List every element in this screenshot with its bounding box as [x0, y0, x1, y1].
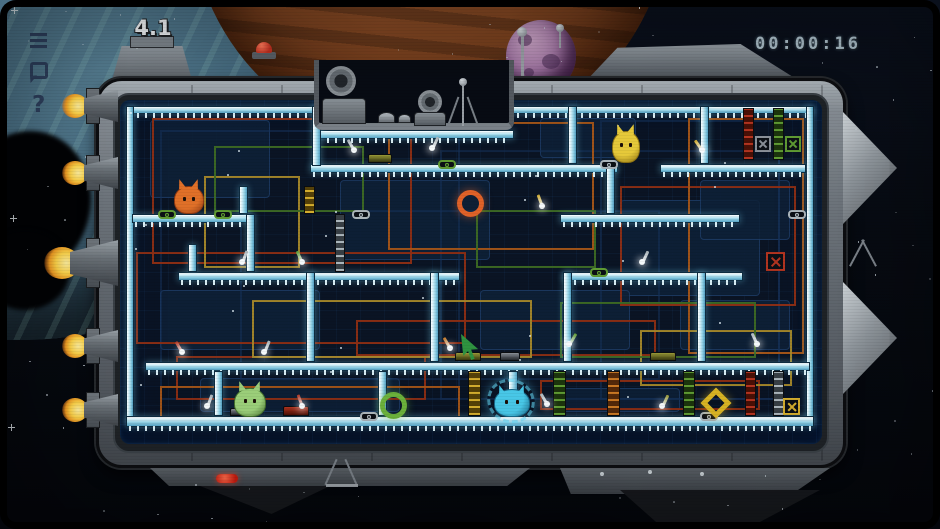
olive-machine — [455, 352, 481, 361]
lever-pivot[interactable] — [239, 259, 245, 265]
antenna-tripod-pole — [462, 82, 464, 126]
ice-pipe — [239, 186, 248, 214]
snow-particle — [238, 150, 240, 152]
star — [673, 501, 675, 503]
lever-pivot[interactable] — [179, 349, 185, 355]
loudspeaker-icon — [326, 66, 356, 96]
star — [894, 420, 896, 422]
lever-pivot[interactable] — [299, 259, 305, 265]
star — [527, 523, 529, 525]
yellow-switch-box[interactable] — [783, 398, 800, 415]
yellow-creature[interactable] — [612, 131, 640, 163]
bottom-dark-wedge-2 — [620, 490, 820, 522]
green-ring — [380, 392, 407, 419]
ice-pipe — [560, 214, 740, 223]
dark-machine — [500, 352, 520, 361]
lever-pivot[interactable] — [351, 147, 357, 153]
ice-pipe — [806, 106, 814, 424]
star-twinkle — [11, 7, 18, 14]
ice-pipe — [660, 164, 806, 173]
lever-pivot[interactable] — [754, 341, 760, 347]
star — [46, 394, 48, 396]
orange-creature[interactable] — [174, 186, 204, 214]
star-twinkle — [636, 2, 643, 9]
right-fin-bottom — [843, 282, 897, 394]
snow-particle — [432, 273, 434, 275]
ice-pipe — [568, 106, 577, 164]
star — [652, 35, 654, 37]
antenna-ball-2 — [556, 24, 564, 32]
snow-particle — [130, 112, 132, 114]
red-pipe-column — [745, 371, 756, 416]
antenna-mast-2 — [559, 30, 561, 48]
pipe-connector — [360, 412, 378, 421]
yellow-pipe-column — [304, 186, 315, 214]
game-screen: 4.1 00:00:16 ? — [0, 0, 940, 529]
pipe-connector — [352, 210, 370, 219]
star — [544, 27, 546, 29]
creature-body — [174, 186, 204, 214]
green-pipe-column — [553, 371, 566, 416]
star — [358, 496, 360, 498]
star — [857, 449, 859, 451]
ice-pipe — [126, 106, 134, 424]
red-hull-light — [216, 474, 238, 483]
creature-eye — [183, 197, 186, 201]
lever-pivot[interactable] — [544, 401, 550, 407]
creature-eye — [629, 143, 632, 147]
star — [65, 11, 67, 13]
yellow-pipe-column — [468, 371, 481, 416]
star — [911, 453, 913, 455]
hull-light-2 — [648, 470, 652, 474]
star — [858, 241, 860, 243]
fin-antenna-leg-2 — [861, 239, 877, 266]
star — [819, 479, 821, 481]
snow-particle — [724, 162, 726, 164]
trestle-base — [326, 484, 358, 487]
red-pipe-column — [743, 108, 754, 160]
creature-eye — [192, 197, 195, 201]
ice-pipe — [310, 164, 618, 173]
star — [822, 62, 824, 64]
green-creature[interactable] — [234, 388, 266, 417]
ice-pipe — [132, 214, 252, 223]
star — [398, 49, 400, 51]
star — [782, 508, 784, 510]
snow-particle — [422, 297, 424, 299]
right-fin-top — [843, 112, 897, 224]
antenna-ball — [517, 27, 527, 37]
star — [211, 518, 213, 520]
loudspeaker-2-base — [414, 112, 446, 126]
pipe-connector — [438, 160, 456, 169]
dome-greeble — [378, 112, 395, 123]
star — [912, 245, 914, 247]
olive-machine — [650, 352, 676, 361]
green-pipe-column — [683, 371, 695, 416]
star — [63, 427, 65, 429]
dark-switch-box[interactable] — [755, 136, 771, 152]
lever-pivot[interactable] — [204, 403, 210, 409]
ice-pipe — [697, 272, 706, 362]
pipe-connector — [590, 268, 608, 277]
ice-pipe — [506, 106, 814, 114]
restart-icon[interactable] — [30, 62, 48, 79]
menu-icon[interactable] — [30, 33, 47, 48]
antenna-tripod-ball — [459, 78, 467, 86]
ice-pipe — [606, 164, 615, 214]
lever-pivot[interactable] — [447, 345, 453, 351]
star — [876, 66, 878, 68]
ice-pipe — [214, 371, 223, 416]
lever-pivot[interactable] — [539, 203, 545, 209]
beacon-base — [252, 52, 276, 59]
ice-pipe — [700, 106, 709, 164]
lever-pivot[interactable] — [261, 349, 267, 355]
star — [581, 527, 583, 529]
star — [103, 510, 105, 512]
lever-pivot[interactable] — [566, 341, 572, 347]
star — [932, 390, 934, 392]
lever-pivot[interactable] — [639, 259, 645, 265]
star — [27, 249, 29, 251]
star — [690, 5, 692, 7]
timer: 00:00:16 — [702, 34, 914, 54]
dome-greeble-2 — [398, 114, 411, 123]
ice-pipe — [178, 272, 460, 281]
level-indicator: 4.1 — [118, 16, 188, 40]
bottom-dark-wedge — [200, 486, 330, 514]
level-pedestal — [112, 46, 192, 80]
star — [930, 70, 932, 72]
star — [619, 497, 621, 499]
ice-pipe — [306, 272, 315, 362]
ice-pipe — [145, 362, 810, 371]
star — [727, 505, 729, 507]
green-switch-box[interactable] — [785, 136, 801, 152]
ice-pipe — [430, 272, 439, 362]
star — [136, 48, 138, 50]
pipe-connector — [788, 210, 806, 219]
star — [561, 61, 563, 63]
snow-particle — [340, 347, 342, 349]
hull-light-3 — [700, 472, 704, 476]
ice-pipe — [563, 272, 572, 362]
pipe-connector — [214, 210, 232, 219]
help-icon[interactable]: ? — [32, 92, 45, 118]
green-wire — [560, 302, 756, 358]
ice-pipe — [316, 130, 514, 139]
star — [29, 361, 31, 363]
lever-pivot[interactable] — [699, 147, 705, 153]
ice-pipe — [246, 214, 255, 272]
star — [855, 129, 857, 131]
star — [598, 31, 600, 33]
silver-pipe-column — [335, 214, 345, 272]
snow-particle — [135, 248, 137, 250]
lever-pivot[interactable] — [659, 403, 665, 409]
creature-eye — [516, 400, 519, 404]
red-switch-box[interactable] — [766, 252, 785, 271]
orange-pipe-column — [607, 371, 620, 416]
snow-particle — [719, 322, 721, 324]
red-machine — [283, 406, 309, 416]
hull-light — [600, 472, 604, 476]
loudspeaker-2-icon — [418, 90, 442, 114]
star-twinkle — [10, 215, 17, 222]
star — [875, 274, 877, 276]
green-pipe-column — [773, 108, 784, 160]
lever-pivot[interactable] — [429, 145, 435, 151]
ice-pipe — [126, 106, 324, 114]
lever-pivot[interactable] — [299, 403, 305, 409]
star — [929, 278, 931, 280]
blue-creature[interactable] — [494, 389, 530, 417]
loudspeaker-base — [322, 98, 366, 124]
snow-particle — [535, 175, 537, 177]
star — [83, 365, 85, 367]
star — [195, 484, 197, 486]
creature-body — [612, 131, 640, 163]
star — [266, 521, 268, 523]
star — [895, 212, 897, 214]
red-beacon-light — [256, 42, 272, 53]
star-twinkle — [8, 424, 15, 431]
yellow-wire — [252, 300, 532, 358]
creature-body — [234, 388, 266, 417]
star — [893, 99, 895, 101]
creature-eye — [253, 399, 256, 403]
green-wire — [214, 146, 364, 212]
orange-ring — [457, 190, 484, 217]
star — [64, 219, 66, 221]
star — [489, 24, 491, 26]
star — [157, 514, 159, 516]
creature-eye — [244, 399, 247, 403]
creature-eye — [505, 400, 508, 404]
olive-machine — [368, 154, 392, 163]
antenna-mast — [521, 34, 524, 78]
ice-pipe — [188, 244, 197, 272]
